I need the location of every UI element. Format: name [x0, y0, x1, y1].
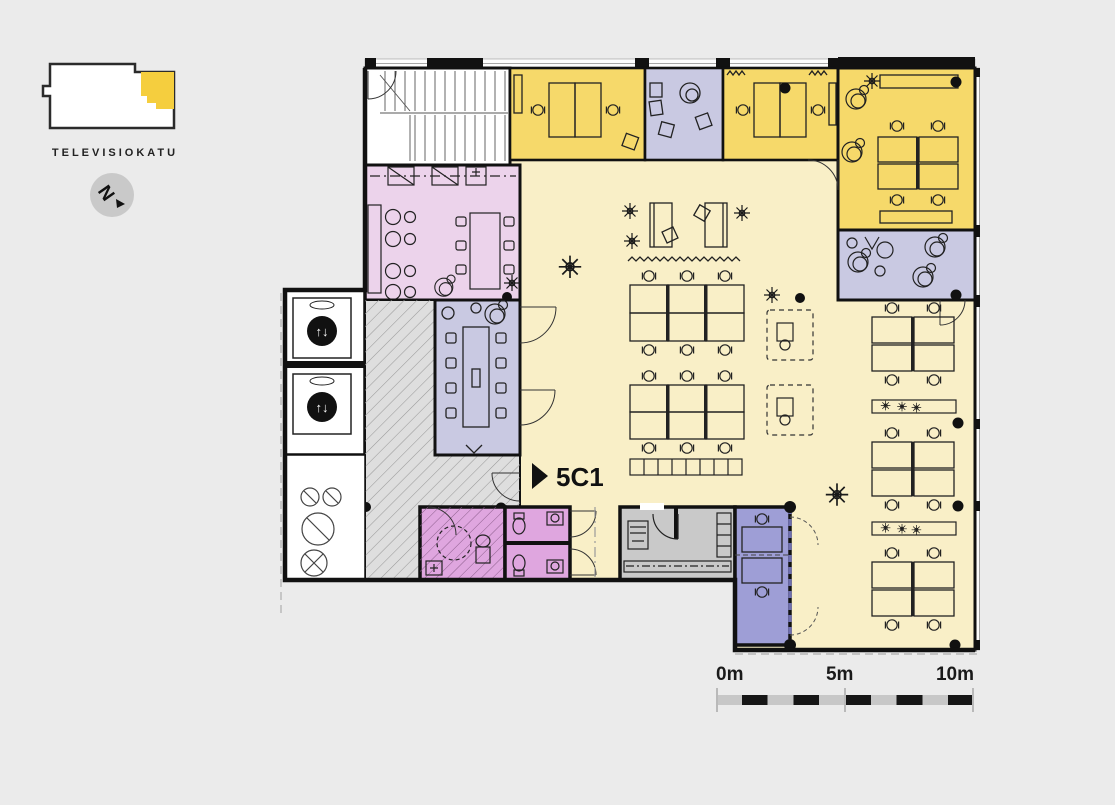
- utility-room: [620, 503, 735, 580]
- scale-label-10: 10m: [936, 664, 974, 686]
- scale-tick: [844, 688, 846, 712]
- north-arrow-icon: N: [89, 172, 135, 218]
- elevator-block: ↑↓ ↑↓: [285, 290, 365, 455]
- scale-tick: [716, 688, 718, 712]
- stairwell: [365, 68, 510, 165]
- window-band-top: [365, 57, 975, 68]
- scale-label-5: 5m: [826, 664, 853, 686]
- office-room-c: [723, 68, 838, 160]
- scale-bar: 0m 5m 10m: [716, 664, 974, 705]
- office-room-a: [510, 68, 645, 160]
- accessible-wc: [420, 507, 505, 580]
- lounge-room-b: [645, 68, 723, 160]
- office-room-d: [838, 68, 975, 230]
- shaft-room: [285, 455, 365, 580]
- key-plan: [40, 52, 180, 152]
- cafe-room: [365, 165, 520, 302]
- floor-plan: ↑↓ ↑↓: [280, 55, 980, 655]
- scale-tick: [972, 688, 974, 712]
- scale-bar-strip: [716, 695, 974, 705]
- svg-text:↑↓: ↑↓: [316, 400, 329, 415]
- svg-text:↑↓: ↑↓: [316, 324, 329, 339]
- unit-label: 5C1: [556, 462, 604, 492]
- scale-label-0: 0m: [716, 664, 743, 686]
- street-label: TELEVISIOKATU: [40, 147, 190, 159]
